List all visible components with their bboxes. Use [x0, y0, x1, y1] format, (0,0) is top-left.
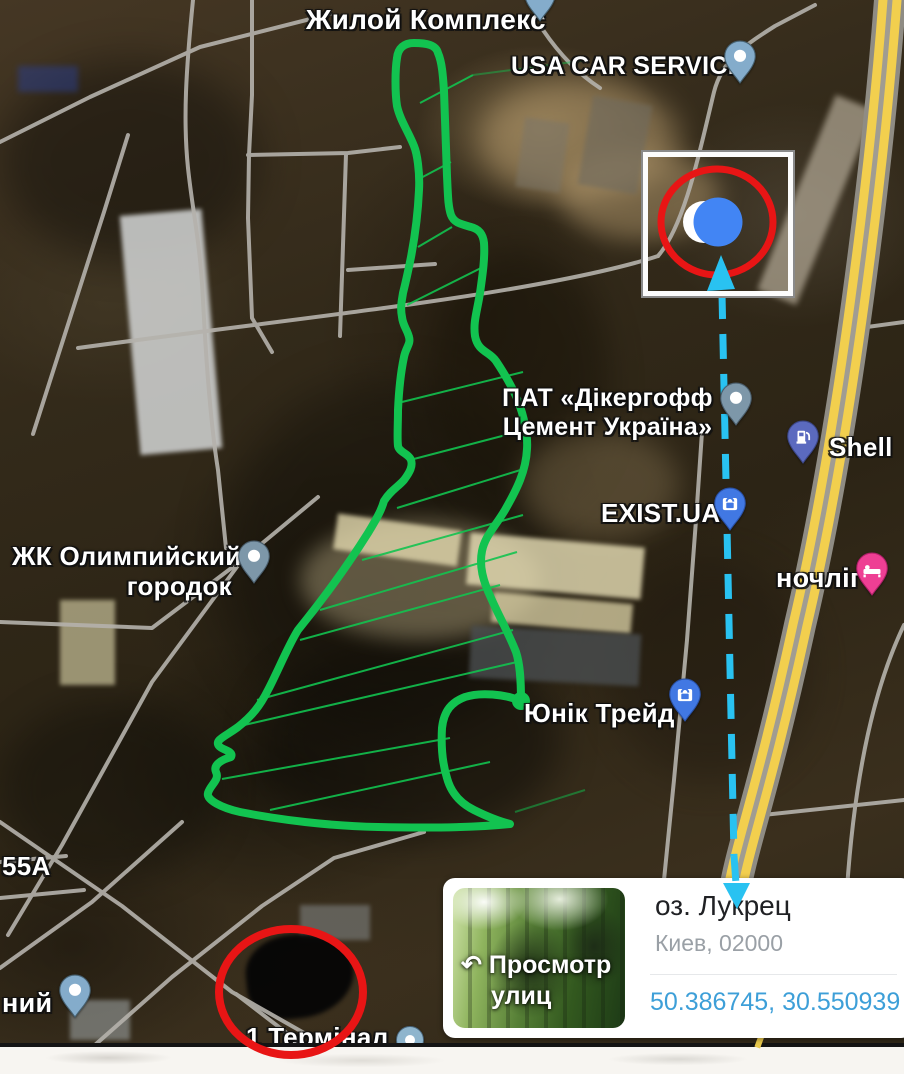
- building: [120, 209, 223, 455]
- poi-label-line: городок: [12, 571, 232, 601]
- pond: [242, 929, 358, 1024]
- poi-label-nochlig[interactable]: ночліг: [776, 563, 862, 594]
- shopping-bag-icon: [668, 678, 702, 722]
- bottom-blur-strip: [0, 1047, 904, 1074]
- poi-label-line: ПАТ «Дікергофф: [500, 384, 715, 413]
- map-pin-icon: [723, 40, 757, 84]
- poi-pin-exist-ua[interactable]: [713, 487, 747, 531]
- satellite-map-view[interactable]: Жилой Комплекс USA CAR SERVICE ПАТ «Діке…: [0, 0, 904, 1074]
- shopping-bag-icon: [713, 487, 747, 531]
- map-pin-icon: [237, 540, 271, 584]
- poi-pin-shell[interactable]: [786, 420, 820, 464]
- poi-label-line: ЖК Олимпийский: [12, 541, 232, 571]
- street-view-label: ↶ Просмотр улиц: [461, 950, 611, 1012]
- poi-pin-niy[interactable]: [58, 974, 92, 1018]
- blue-roof: [18, 66, 78, 92]
- building: [300, 905, 370, 940]
- poi-pin-olimpiysky[interactable]: [237, 540, 271, 584]
- poi-label-usa-car-service[interactable]: USA CAR SERVICE: [511, 52, 745, 81]
- forest-patch: [260, 640, 560, 840]
- street-view-arrow-icon: ↶: [461, 951, 482, 979]
- fuel-pump-icon: [786, 420, 820, 464]
- bed-icon: [855, 552, 889, 596]
- poi-label-line: Цемент Україна»: [500, 413, 715, 442]
- forest-patch: [0, 60, 260, 260]
- building: [469, 626, 641, 687]
- clearing-patch: [300, 520, 540, 640]
- building: [578, 95, 653, 194]
- map-pin-icon: [523, 0, 557, 22]
- poi-pin-yunik-trade[interactable]: [668, 678, 702, 722]
- building: [491, 592, 633, 634]
- poi-pin-nochlig[interactable]: [855, 552, 889, 596]
- location-inset-box: [643, 152, 793, 296]
- street-view-label-line: Просмотр: [489, 951, 611, 979]
- poi-label-niy[interactable]: ний: [2, 988, 52, 1019]
- poi-label-shell[interactable]: Shell: [829, 432, 893, 463]
- coordinates-link[interactable]: 50.386745, 30.550939: [650, 988, 900, 1017]
- place-title: оз. Лукрец: [655, 890, 791, 922]
- poi-label-55a: 55А: [2, 851, 51, 882]
- poi-label-dyckerhoff[interactable]: ПАТ «Дікергофф Цемент Україна»: [500, 384, 715, 442]
- poi-label-yunik-trade[interactable]: Юнік Трейд: [524, 698, 675, 729]
- poi-pin-dyckerhoff[interactable]: [719, 382, 753, 426]
- street-view-thumbnail[interactable]: ↶ Просмотр улиц: [453, 888, 625, 1028]
- building: [515, 117, 569, 193]
- map-pin-icon: [719, 382, 753, 426]
- poi-label-olimpiysky[interactable]: ЖК Олимпийский городок: [12, 541, 232, 601]
- building: [466, 532, 645, 599]
- place-info-card[interactable]: ↶ Просмотр улиц оз. Лукрец Киев, 02000 5…: [443, 878, 904, 1038]
- connector-arrow-shaft: [707, 255, 735, 856]
- poi-label-exist-ua[interactable]: EXIST.UA: [601, 498, 720, 529]
- poi-pin-usa-car-service[interactable]: [723, 40, 757, 84]
- street-view-label-line: улиц: [491, 981, 611, 1012]
- card-divider: [650, 974, 897, 975]
- building: [333, 513, 462, 566]
- poi-label-residential-complex[interactable]: Жилой Комплекс: [306, 4, 546, 36]
- forest-patch: [430, 250, 610, 510]
- highlighted-area-outline: [208, 43, 527, 828]
- poi-pin-residential-complex[interactable]: [523, 0, 557, 22]
- map-pin-icon: [58, 974, 92, 1018]
- building: [60, 600, 115, 685]
- place-subtitle: Киев, 02000: [655, 930, 783, 957]
